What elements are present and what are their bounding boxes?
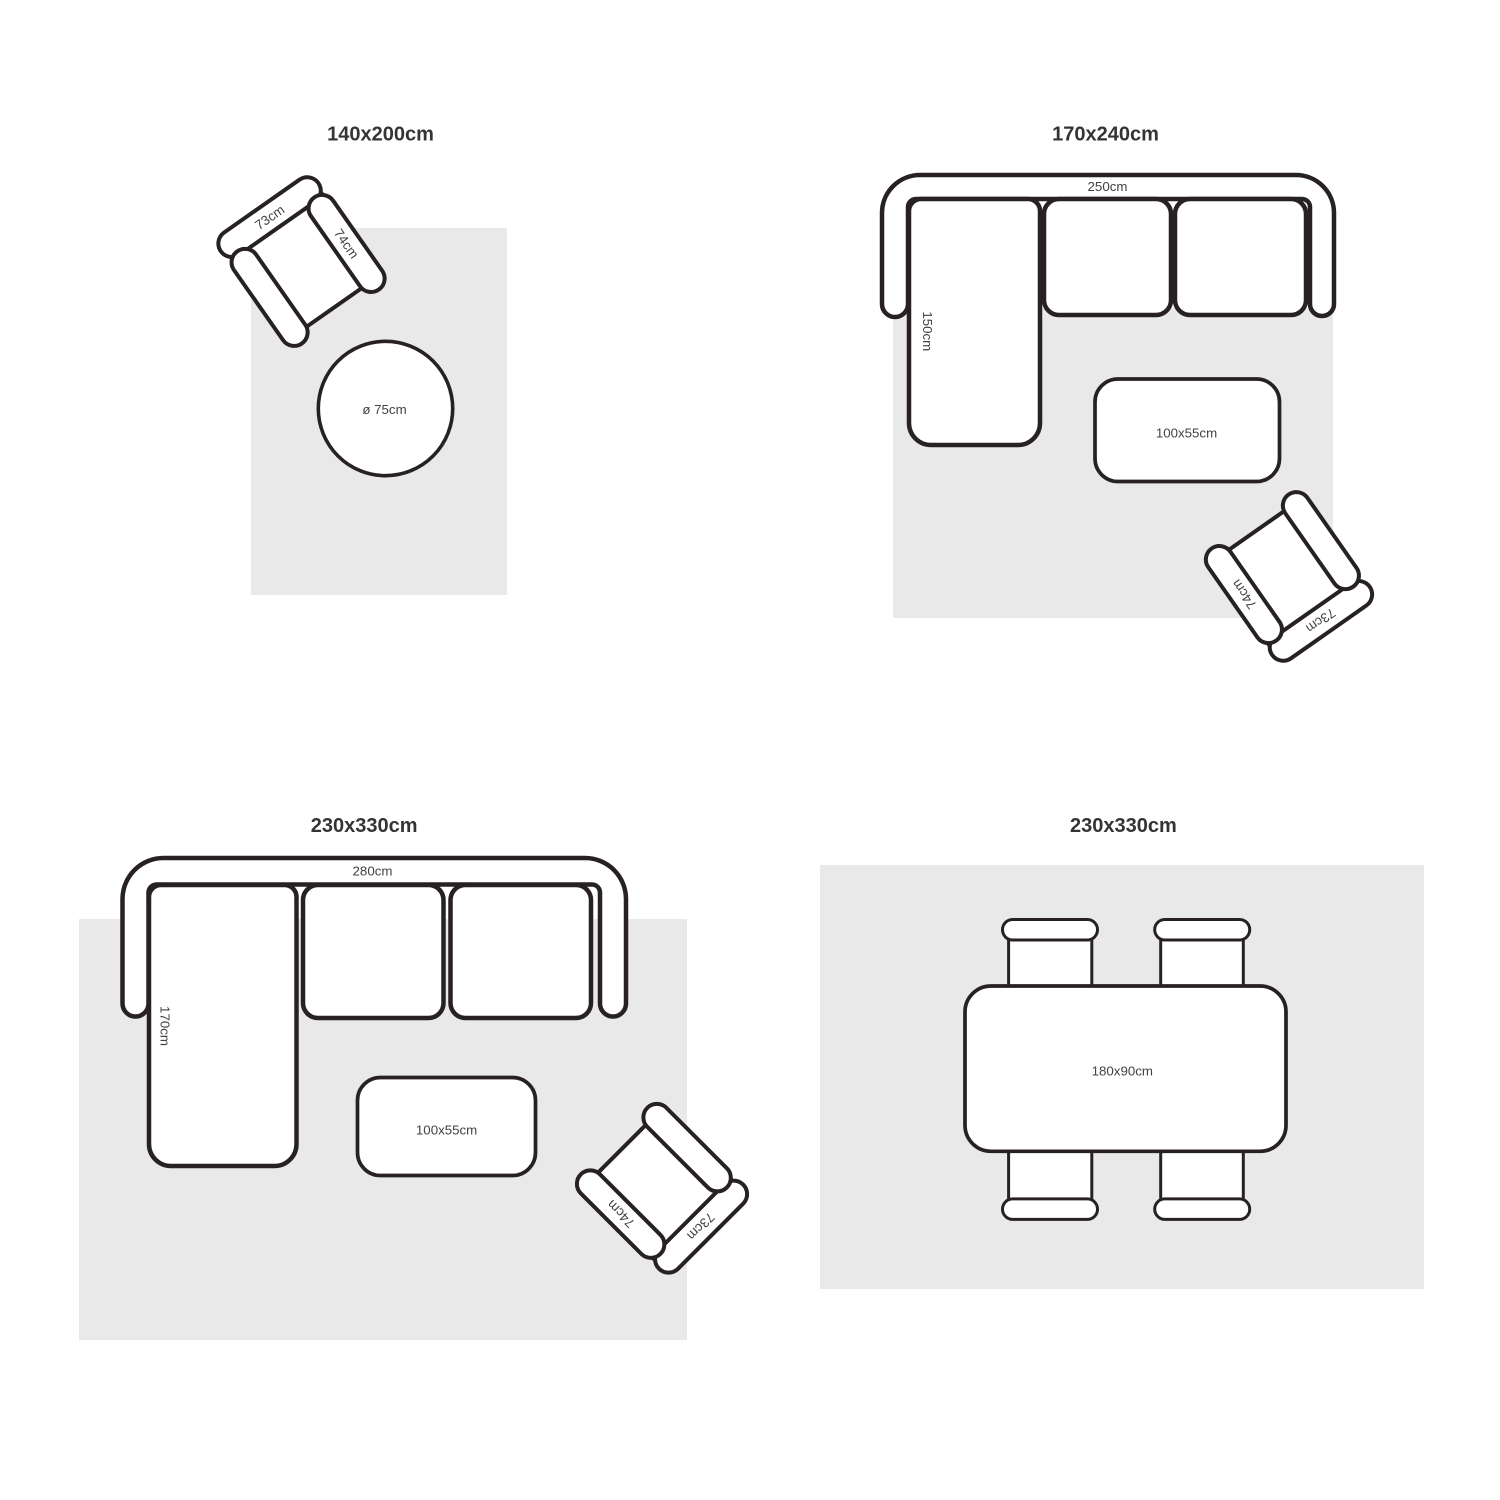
- svg-text:140x200cm: 140x200cm: [327, 124, 434, 146]
- svg-text:100x55cm: 100x55cm: [1156, 426, 1217, 441]
- svg-text:280cm: 280cm: [353, 864, 393, 879]
- svg-text:100x55cm: 100x55cm: [416, 1123, 477, 1138]
- svg-text:180x90cm: 180x90cm: [1092, 1064, 1153, 1079]
- svg-text:ø 75cm: ø 75cm: [362, 402, 406, 417]
- svg-text:170x240cm: 170x240cm: [1052, 124, 1159, 146]
- svg-text:230x330cm: 230x330cm: [311, 815, 418, 837]
- svg-text:150cm: 150cm: [920, 311, 935, 351]
- svg-text:170cm: 170cm: [158, 1006, 173, 1046]
- svg-text:230x330cm: 230x330cm: [1070, 815, 1177, 837]
- svg-text:250cm: 250cm: [1088, 179, 1128, 194]
